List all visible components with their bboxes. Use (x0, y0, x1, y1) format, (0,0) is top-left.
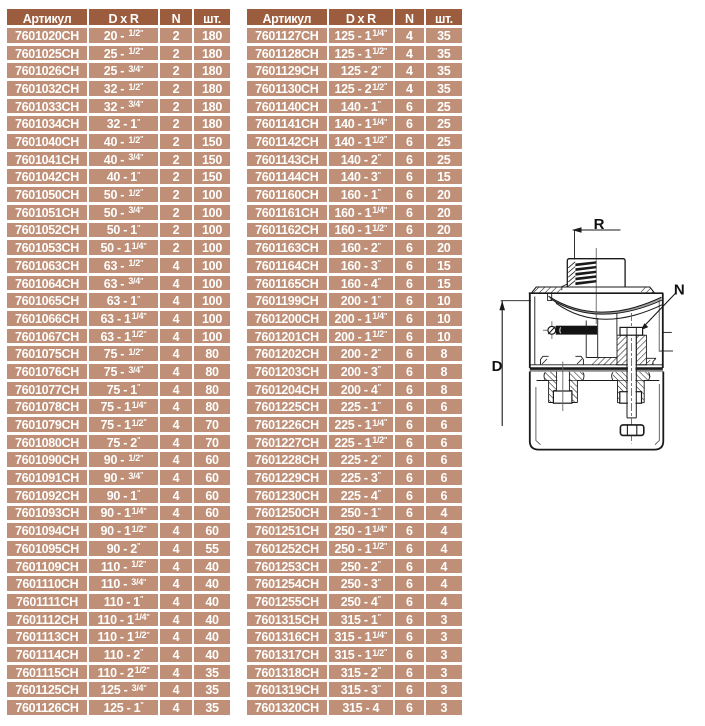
svg-text:D: D (492, 358, 503, 375)
svg-text:R: R (594, 216, 605, 233)
svg-text:N: N (674, 282, 685, 299)
